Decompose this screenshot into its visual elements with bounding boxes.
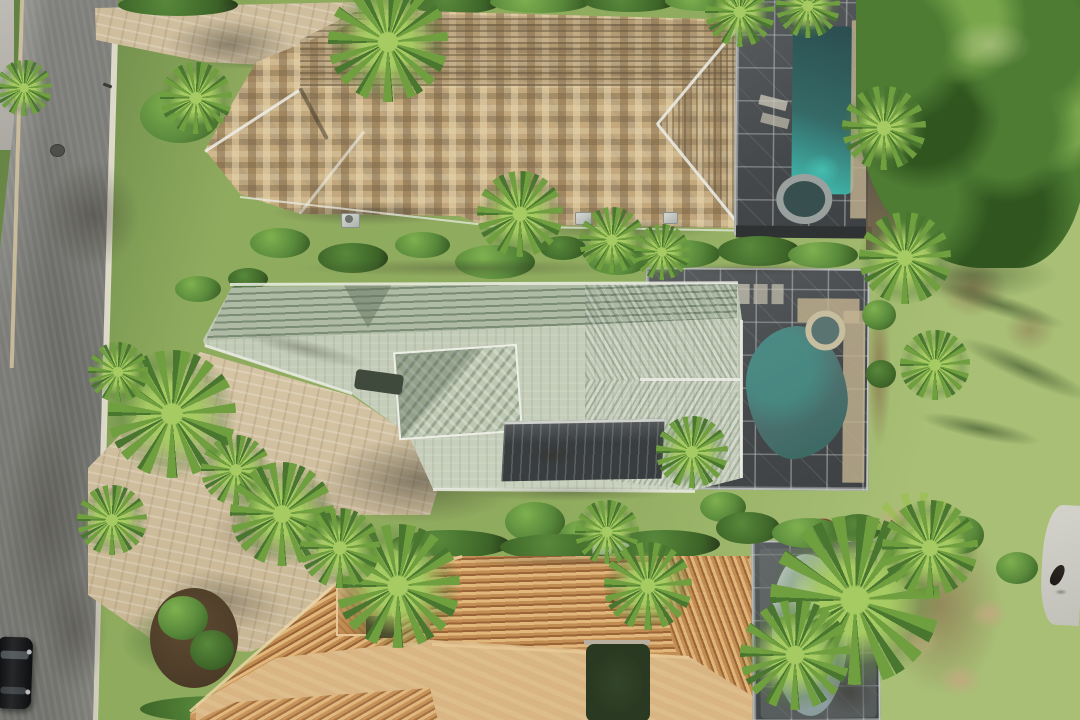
car-body [0, 636, 33, 709]
hip-ridge [640, 378, 740, 381]
eave-shadow [430, 482, 710, 504]
tree-shadow-on-street [28, 140, 158, 290]
car-rear-window [0, 687, 26, 695]
palm-tree [477, 171, 563, 257]
hedge [716, 512, 780, 544]
solar-reflection [518, 440, 588, 470]
bed-shrubs [190, 630, 234, 670]
palm-tree [740, 600, 850, 710]
hedge [490, 0, 590, 13]
tree-canopy-highlight [930, 10, 1050, 80]
lounger [772, 284, 784, 304]
parked-car [0, 636, 33, 709]
shrub [228, 268, 268, 290]
spa [805, 310, 845, 350]
palm-tree [859, 212, 951, 304]
shrub [996, 552, 1038, 584]
palm-tree [579, 207, 645, 273]
ac-unit [663, 212, 678, 224]
hedge [585, 0, 675, 12]
shrub [866, 360, 896, 388]
fascia-line [740, 320, 743, 478]
ornamental-grass [962, 592, 1016, 636]
ac-fan [345, 215, 353, 223]
palm-tree [604, 542, 692, 630]
car-windshield [0, 651, 28, 660]
bird-shadow [1052, 588, 1070, 596]
ornamental-grass [928, 656, 992, 704]
palm-tree [882, 500, 978, 596]
lounger [758, 94, 788, 111]
palm-tree [77, 485, 147, 555]
palm-tree [842, 86, 926, 170]
palm-tree [300, 508, 380, 588]
shrub [175, 276, 221, 302]
palm-tree [900, 330, 970, 400]
lounger [760, 112, 790, 129]
aerial-neighborhood-photo: Overhead aerial view of three luxury Flo… [0, 0, 1080, 720]
palm-tree [656, 416, 728, 488]
palm-tree [160, 62, 232, 134]
palm-tree [88, 342, 148, 402]
spa [776, 174, 832, 224]
lounger [754, 284, 768, 304]
courtyard-garden [586, 644, 650, 720]
palm-tree [634, 224, 690, 280]
shrub [250, 228, 310, 258]
shrub [395, 232, 450, 258]
shrub [862, 300, 896, 330]
